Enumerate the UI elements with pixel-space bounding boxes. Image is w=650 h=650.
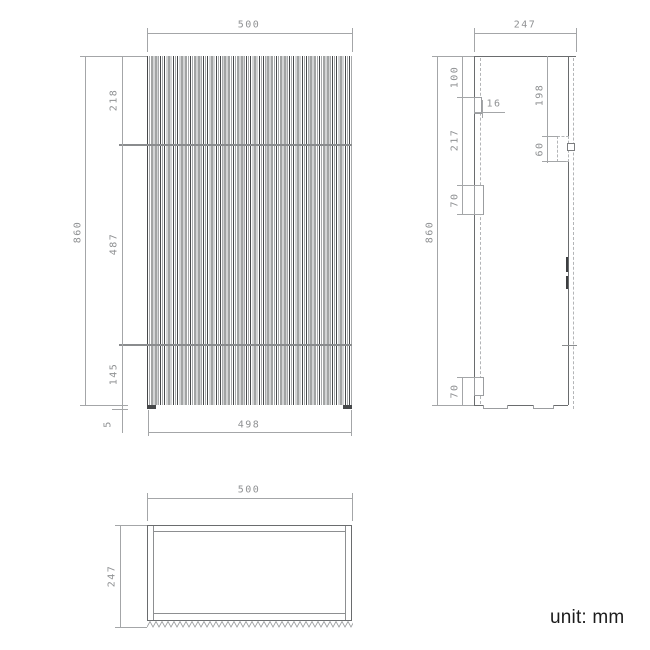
- plan-front-inner-line: [153, 613, 346, 614]
- side-height-label: 860: [425, 221, 436, 244]
- front-plinth-label: 5: [103, 420, 114, 428]
- side-bottom-bracket: [474, 377, 484, 396]
- plan-back-inner-line: [153, 531, 346, 532]
- plan-depth-label: 247: [107, 565, 118, 588]
- front-seam-lower: [119, 344, 352, 346]
- side-handle-mark-upper: [566, 257, 568, 272]
- front-height-dim-line: [85, 56, 86, 405]
- front-left-foot: [147, 405, 156, 409]
- front-seg-dim-line: [122, 56, 123, 433]
- side-bottom70-tick: [457, 377, 480, 378]
- front-bottom-width-label: 498: [238, 420, 261, 431]
- plan-right-edge: [351, 525, 352, 620]
- front-bottom-width-ext-left: [148, 410, 149, 436]
- side-left-tick-70: [457, 214, 483, 215]
- front-height-ext-bottom: [80, 405, 128, 406]
- side-depth-ext-left: [474, 28, 475, 52]
- plan-width-ext-right: [352, 493, 353, 521]
- side-seam-mark: [562, 345, 577, 346]
- front-height-label: 860: [73, 221, 84, 244]
- side-height-ext-bottom: [432, 405, 474, 406]
- side-top-offset-label: 100: [450, 66, 461, 89]
- side-right-tick-198: [542, 136, 558, 137]
- side-height-ext-top: [432, 56, 474, 57]
- front-width-label: 500: [238, 20, 261, 31]
- side-depth-dim-line: [474, 33, 576, 34]
- front-width-dim-line: [147, 33, 352, 34]
- side-flute-hidden-line: [573, 58, 574, 409]
- unit-label: unit: mm: [550, 607, 624, 629]
- plan-left-inner-line: [153, 526, 154, 620]
- side-rail-leader: [474, 112, 505, 113]
- front-seam-upper: [119, 144, 352, 146]
- side-slot-height-label: 60: [535, 141, 546, 156]
- plan-right-inner-line: [345, 526, 346, 620]
- side-front-foot: [483, 405, 508, 409]
- side-bottom-offset-label: 70: [450, 383, 461, 398]
- side-front-edge: [568, 56, 569, 405]
- fluted-edge-zigzag: [147, 620, 353, 628]
- side-handle-mark-lower: [566, 276, 568, 289]
- side-mid-bracket: [474, 185, 484, 215]
- front-width-ext-left: [147, 28, 148, 52]
- plan-left-edge: [147, 525, 148, 620]
- side-left-tick-100: [457, 97, 474, 98]
- front-bottom-width-ext-right: [351, 410, 352, 436]
- fluted-front-panel: [147, 56, 352, 405]
- side-rail-tick: [482, 100, 483, 118]
- front-seg-mid-label: 487: [109, 233, 120, 256]
- side-right-dim-line: [547, 56, 548, 163]
- side-left-tick-217: [457, 185, 483, 186]
- side-rail-label: 16: [486, 99, 501, 110]
- side-bottom70-dim-line: [462, 377, 463, 405]
- plan-back-edge: [147, 525, 352, 526]
- side-back-foot: [533, 405, 554, 409]
- front-height-ext-top: [80, 56, 147, 57]
- side-mid-span-label: 217: [450, 129, 461, 152]
- plan-width-label: 500: [238, 485, 261, 496]
- side-bracket-height-label: 70: [450, 192, 461, 207]
- plan-width-dim-line: [147, 498, 352, 499]
- side-depth-ext-right: [576, 28, 577, 52]
- side-left-seg-dim-line: [462, 56, 463, 214]
- front-seg-bottom-label: 145: [109, 363, 120, 386]
- plan-depth-dim-line: [120, 525, 121, 627]
- front-seg-top-label: 218: [109, 89, 120, 112]
- side-right-tick-60: [542, 161, 566, 162]
- front-right-foot: [343, 405, 352, 409]
- side-hanger-tab: [567, 143, 575, 151]
- plan-depth-tick-top: [115, 525, 147, 526]
- front-plinth-tick: [112, 409, 128, 410]
- side-height-dim-line: [437, 56, 438, 405]
- front-bottom-width-dim-line: [148, 432, 351, 433]
- side-back-offset-label: 198: [535, 84, 546, 107]
- plan-depth-tick-bottom: [115, 627, 147, 628]
- side-depth-label: 247: [514, 20, 537, 31]
- plan-width-ext-left: [147, 493, 148, 521]
- side-top-edge: [474, 56, 576, 57]
- technical-drawing-canvas: 500 860 218 487 145 5 498: [0, 0, 650, 650]
- front-width-ext-right: [352, 28, 353, 52]
